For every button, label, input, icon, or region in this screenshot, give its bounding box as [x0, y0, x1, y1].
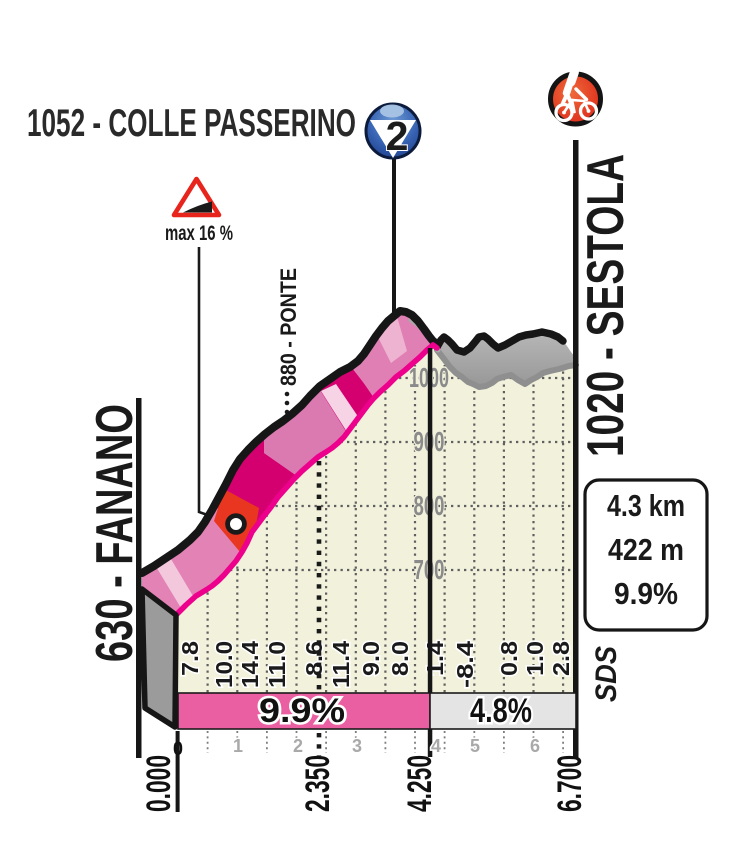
svg-text:1052 - COLLE PASSERINO: 1052 - COLLE PASSERINO	[27, 102, 356, 145]
svg-text:max 16 %: max 16 %	[165, 222, 233, 245]
svg-text:3: 3	[352, 736, 362, 756]
svg-text:10.0: 10.0	[211, 641, 237, 688]
svg-text:422 m: 422 m	[608, 532, 684, 567]
svg-text:1.0: 1.0	[522, 641, 548, 676]
svg-text:8.6: 8.6	[301, 641, 327, 676]
svg-text:11.4: 11.4	[328, 641, 354, 688]
svg-text:9.9%: 9.9%	[259, 692, 345, 730]
svg-text:9.9%: 9.9%	[614, 576, 678, 611]
svg-text:4.8%: 4.8%	[470, 692, 532, 730]
svg-text:6.700: 6.700	[551, 755, 589, 812]
svg-text:880 - PONTE: 880 - PONTE	[276, 268, 301, 386]
svg-text:2: 2	[293, 736, 303, 756]
svg-text:14.4: 14.4	[237, 641, 263, 688]
svg-text:4.3 km: 4.3 km	[607, 488, 685, 523]
svg-text:7.8: 7.8	[177, 641, 203, 676]
svg-text:5: 5	[470, 736, 480, 756]
svg-text:SDS: SDS	[590, 646, 623, 702]
svg-text:630 - FANANO: 630 - FANANO	[86, 404, 144, 662]
svg-text:6: 6	[530, 736, 540, 756]
svg-text:8.0: 8.0	[387, 641, 413, 676]
svg-text:4.250: 4.250	[401, 755, 439, 812]
svg-text:2: 2	[386, 113, 409, 159]
svg-text:0.8: 0.8	[496, 641, 522, 676]
svg-text:1: 1	[233, 736, 243, 756]
svg-text:-8.4: -8.4	[452, 641, 478, 688]
svg-text:11.0: 11.0	[264, 641, 290, 688]
svg-text:4: 4	[431, 736, 441, 756]
svg-text:2.350: 2.350	[299, 755, 337, 812]
svg-text:1.4: 1.4	[422, 641, 448, 676]
svg-text:0.000: 0.000	[140, 755, 178, 812]
svg-text:2.8: 2.8	[548, 641, 574, 676]
svg-text:1020 - SESTOLA: 1020 - SESTOLA	[577, 154, 635, 457]
svg-text:9.0: 9.0	[358, 641, 384, 676]
